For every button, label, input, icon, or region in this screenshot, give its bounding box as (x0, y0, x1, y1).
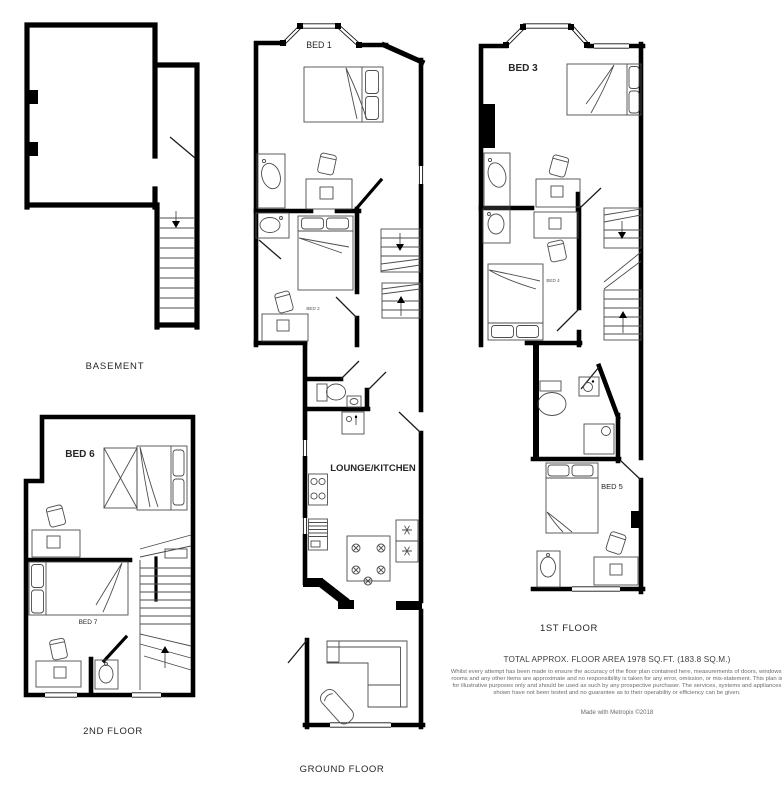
door-swing (170, 137, 195, 158)
lounge-kitchen-room-label: LOUNGE/KITCHEN (330, 463, 416, 474)
basement-label: BASEMENT (86, 361, 145, 372)
chaise-chair (318, 687, 357, 727)
hob (309, 474, 328, 505)
first-floor-stairs (604, 208, 641, 340)
wc-toilet (317, 384, 346, 401)
basement-stairs (159, 211, 194, 308)
bed5-sink-unit (537, 551, 560, 587)
kitchen-sink-unit (342, 412, 364, 434)
dining-table (347, 536, 390, 585)
bed1-sink-unit (257, 154, 285, 208)
bed1-desk (306, 153, 352, 209)
second-floor-label: 2ND FLOOR (83, 726, 143, 737)
ground-floor-label: GROUND FLOOR (300, 764, 385, 775)
bed3-room-label: BED 3 (508, 63, 538, 74)
attribution-text: Made with Metropix ©2018 (450, 709, 782, 716)
bed1-double-bed (304, 67, 383, 122)
bay-window (503, 24, 590, 48)
bed3-sink-unit (484, 153, 510, 207)
bathroom-toilet (538, 381, 566, 416)
floorplan-canvas: BASEMENT (0, 0, 782, 800)
first-floor-plan: BED 4 (481, 24, 643, 634)
bed7-sink-unit (95, 660, 118, 689)
bed3-desk (536, 154, 580, 207)
wc-sink (347, 396, 361, 407)
second-floor-stairs (140, 535, 191, 690)
bed5-room-label: BED 5 (601, 482, 623, 491)
bed4-desk (534, 212, 578, 262)
bed2-sink-unit (256, 213, 289, 238)
bed7-room-label: BED 7 (79, 619, 98, 626)
bed5-desk (594, 531, 638, 585)
bed4-bed (488, 264, 543, 340)
basement-plan: BASEMENT (25, 25, 284, 372)
stairs-arrow-icon (172, 221, 180, 228)
fridge-freezer (396, 520, 418, 562)
bed6-wardrobe (104, 448, 137, 508)
bed6-desk (32, 504, 80, 557)
disclaimer-text: Whilst every attempt has been made to en… (450, 669, 782, 697)
chimney-breast (25, 90, 38, 104)
bed7-desk (36, 638, 81, 687)
chimney-breast (25, 142, 38, 156)
ground-floor-stairs (381, 229, 420, 318)
bed2-room-label: BED 2 (306, 306, 320, 311)
window (303, 166, 422, 727)
first-floor-label: 1ST FLOOR (540, 623, 598, 634)
bed5-bed (546, 463, 598, 533)
shower-tray (584, 424, 614, 454)
bed1-room-label: BED 1 (306, 40, 332, 50)
second-floor-plan: BED 6 BED 7 2ND FLOOR (26, 417, 193, 737)
total-floor-area-text: TOTAL APPROX. FLOOR AREA 1978 SQ.FT. (18… (452, 655, 782, 664)
bed6-bed (137, 446, 187, 510)
corner-sofa (327, 641, 407, 707)
bed4-room-label: BED 4 (546, 278, 560, 283)
ground-floor-plan: BED 2 (256, 23, 423, 775)
chimney-breast (481, 104, 495, 148)
chimney-breast (631, 511, 643, 528)
bed4-sink-unit (483, 209, 510, 243)
bed2-double-bed (298, 216, 353, 290)
counter-unit (309, 519, 328, 550)
bed7-bed (29, 562, 128, 615)
bed3-bed (567, 64, 641, 115)
bed2-desk (262, 290, 308, 341)
bed6-room-label: BED 6 (65, 449, 95, 460)
